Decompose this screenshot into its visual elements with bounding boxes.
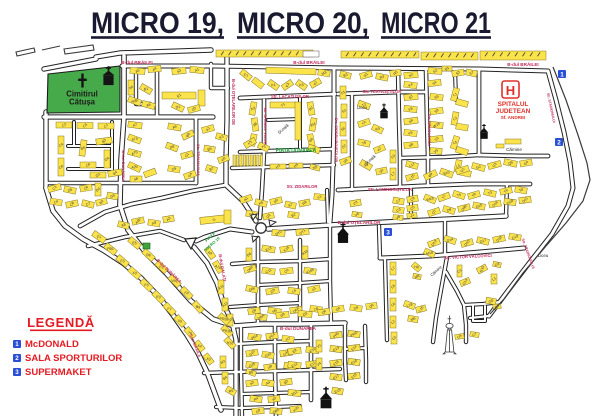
svg-text:JUDETEAN: JUDETEAN — [496, 108, 531, 115]
svg-text:PIATA DUNAREA: PIATA DUNAREA — [276, 148, 317, 154]
svg-text:2: 2 — [557, 139, 561, 146]
svg-text:E3: E3 — [156, 295, 161, 300]
svg-text:H: H — [506, 83, 515, 98]
svg-text:MICRO 21: MICRO 21 — [381, 7, 491, 40]
svg-text:Cătușa: Cătușa — [69, 98, 96, 107]
svg-text:F7: F7 — [167, 307, 172, 312]
svg-text:3: 3 — [15, 369, 19, 376]
svg-text:PR3a: PR3a — [219, 317, 228, 322]
svg-text:PB1: PB1 — [107, 247, 114, 251]
svg-text:F5: F5 — [144, 283, 149, 287]
svg-text:Str. ZIDARILOR: Str. ZIDARILOR — [287, 184, 318, 189]
svg-text:2: 2 — [15, 355, 19, 362]
svg-text:F1: F1 — [244, 73, 248, 77]
svg-text:3: 3 — [386, 229, 390, 236]
svg-text:1: 1 — [560, 71, 564, 78]
svg-text:B-dul BRĂILEI: B-dul BRĂILEI — [507, 61, 538, 67]
svg-text:LEGENDĂ: LEGENDĂ — [27, 315, 95, 330]
svg-text:Str. NĂMOLOASA: Str. NĂMOLOASA — [427, 114, 432, 146]
svg-text:Str. DRUMUL VIILOR: Str. DRUMUL VIILOR — [263, 107, 267, 145]
svg-text:X5: X5 — [177, 319, 182, 324]
svg-text:SPITALUL: SPITALUL — [498, 101, 529, 108]
svg-text:B-dul BRĂILEI: B-dul BRĂILEI — [293, 59, 324, 65]
svg-text:1: 1 — [15, 341, 19, 348]
svg-text:SALA SPORTURILOR: SALA SPORTURILOR — [25, 353, 122, 364]
svg-text:Liceu: Liceu — [538, 253, 549, 258]
svg-text:B-dul OȚELARILOR: B-dul OȚELARILOR — [338, 220, 382, 225]
svg-text:B-dul DUNĂREA: B-dul DUNĂREA — [280, 325, 317, 331]
svg-text:Liceu: Liceu — [357, 105, 368, 110]
svg-text:Str. TRAIAN VUIA: Str. TRAIAN VUIA — [196, 144, 200, 176]
svg-text:McDONALD: McDONALD — [25, 339, 79, 350]
svg-text:Str. SIDERURGIȘTILOR: Str. SIDERURGIȘTILOR — [334, 118, 339, 163]
svg-text:Sf. ANDREI: Sf. ANDREI — [501, 115, 526, 120]
svg-text:F8: F8 — [184, 291, 189, 296]
svg-text:B-dul BRĂILEI: B-dul BRĂILEI — [121, 59, 152, 65]
svg-text:R5: R5 — [228, 389, 233, 394]
svg-text:B8: B8 — [195, 305, 200, 310]
svg-text:H8: H8 — [414, 265, 419, 269]
svg-text:B1: B1 — [144, 87, 149, 92]
svg-text:F3: F3 — [120, 259, 124, 263]
svg-text:Str. TEXTILIȘTILOR: Str. TEXTILIȘTILOR — [363, 89, 402, 94]
svg-text:MICRO 19,: MICRO 19, — [91, 7, 224, 40]
svg-text:K1: K1 — [271, 83, 276, 87]
svg-text:X3: X3 — [132, 271, 137, 275]
svg-text:Str. LĂCĂTUȘILOR: Str. LĂCĂTUȘILOR — [271, 94, 309, 99]
svg-text:Cămine: Cămine — [506, 147, 522, 152]
svg-text:B6: B6 — [146, 253, 151, 257]
svg-text:E5: E5 — [132, 241, 137, 245]
svg-text:K5: K5 — [299, 83, 304, 87]
svg-text:Str. LAMINORIȘTILOR: Str. LAMINORIȘTILOR — [368, 187, 412, 192]
svg-text:B-dul OȚELARILOR DE: B-dul OȚELARILOR DE — [231, 79, 236, 125]
svg-text:F1: F1 — [97, 235, 101, 239]
svg-text:B-dul DUNĂREA: B-dul DUNĂREA — [121, 150, 126, 181]
svg-text:MICRO 20,: MICRO 20, — [237, 7, 369, 40]
svg-text:SUPERMAKET: SUPERMAKET — [25, 367, 92, 378]
